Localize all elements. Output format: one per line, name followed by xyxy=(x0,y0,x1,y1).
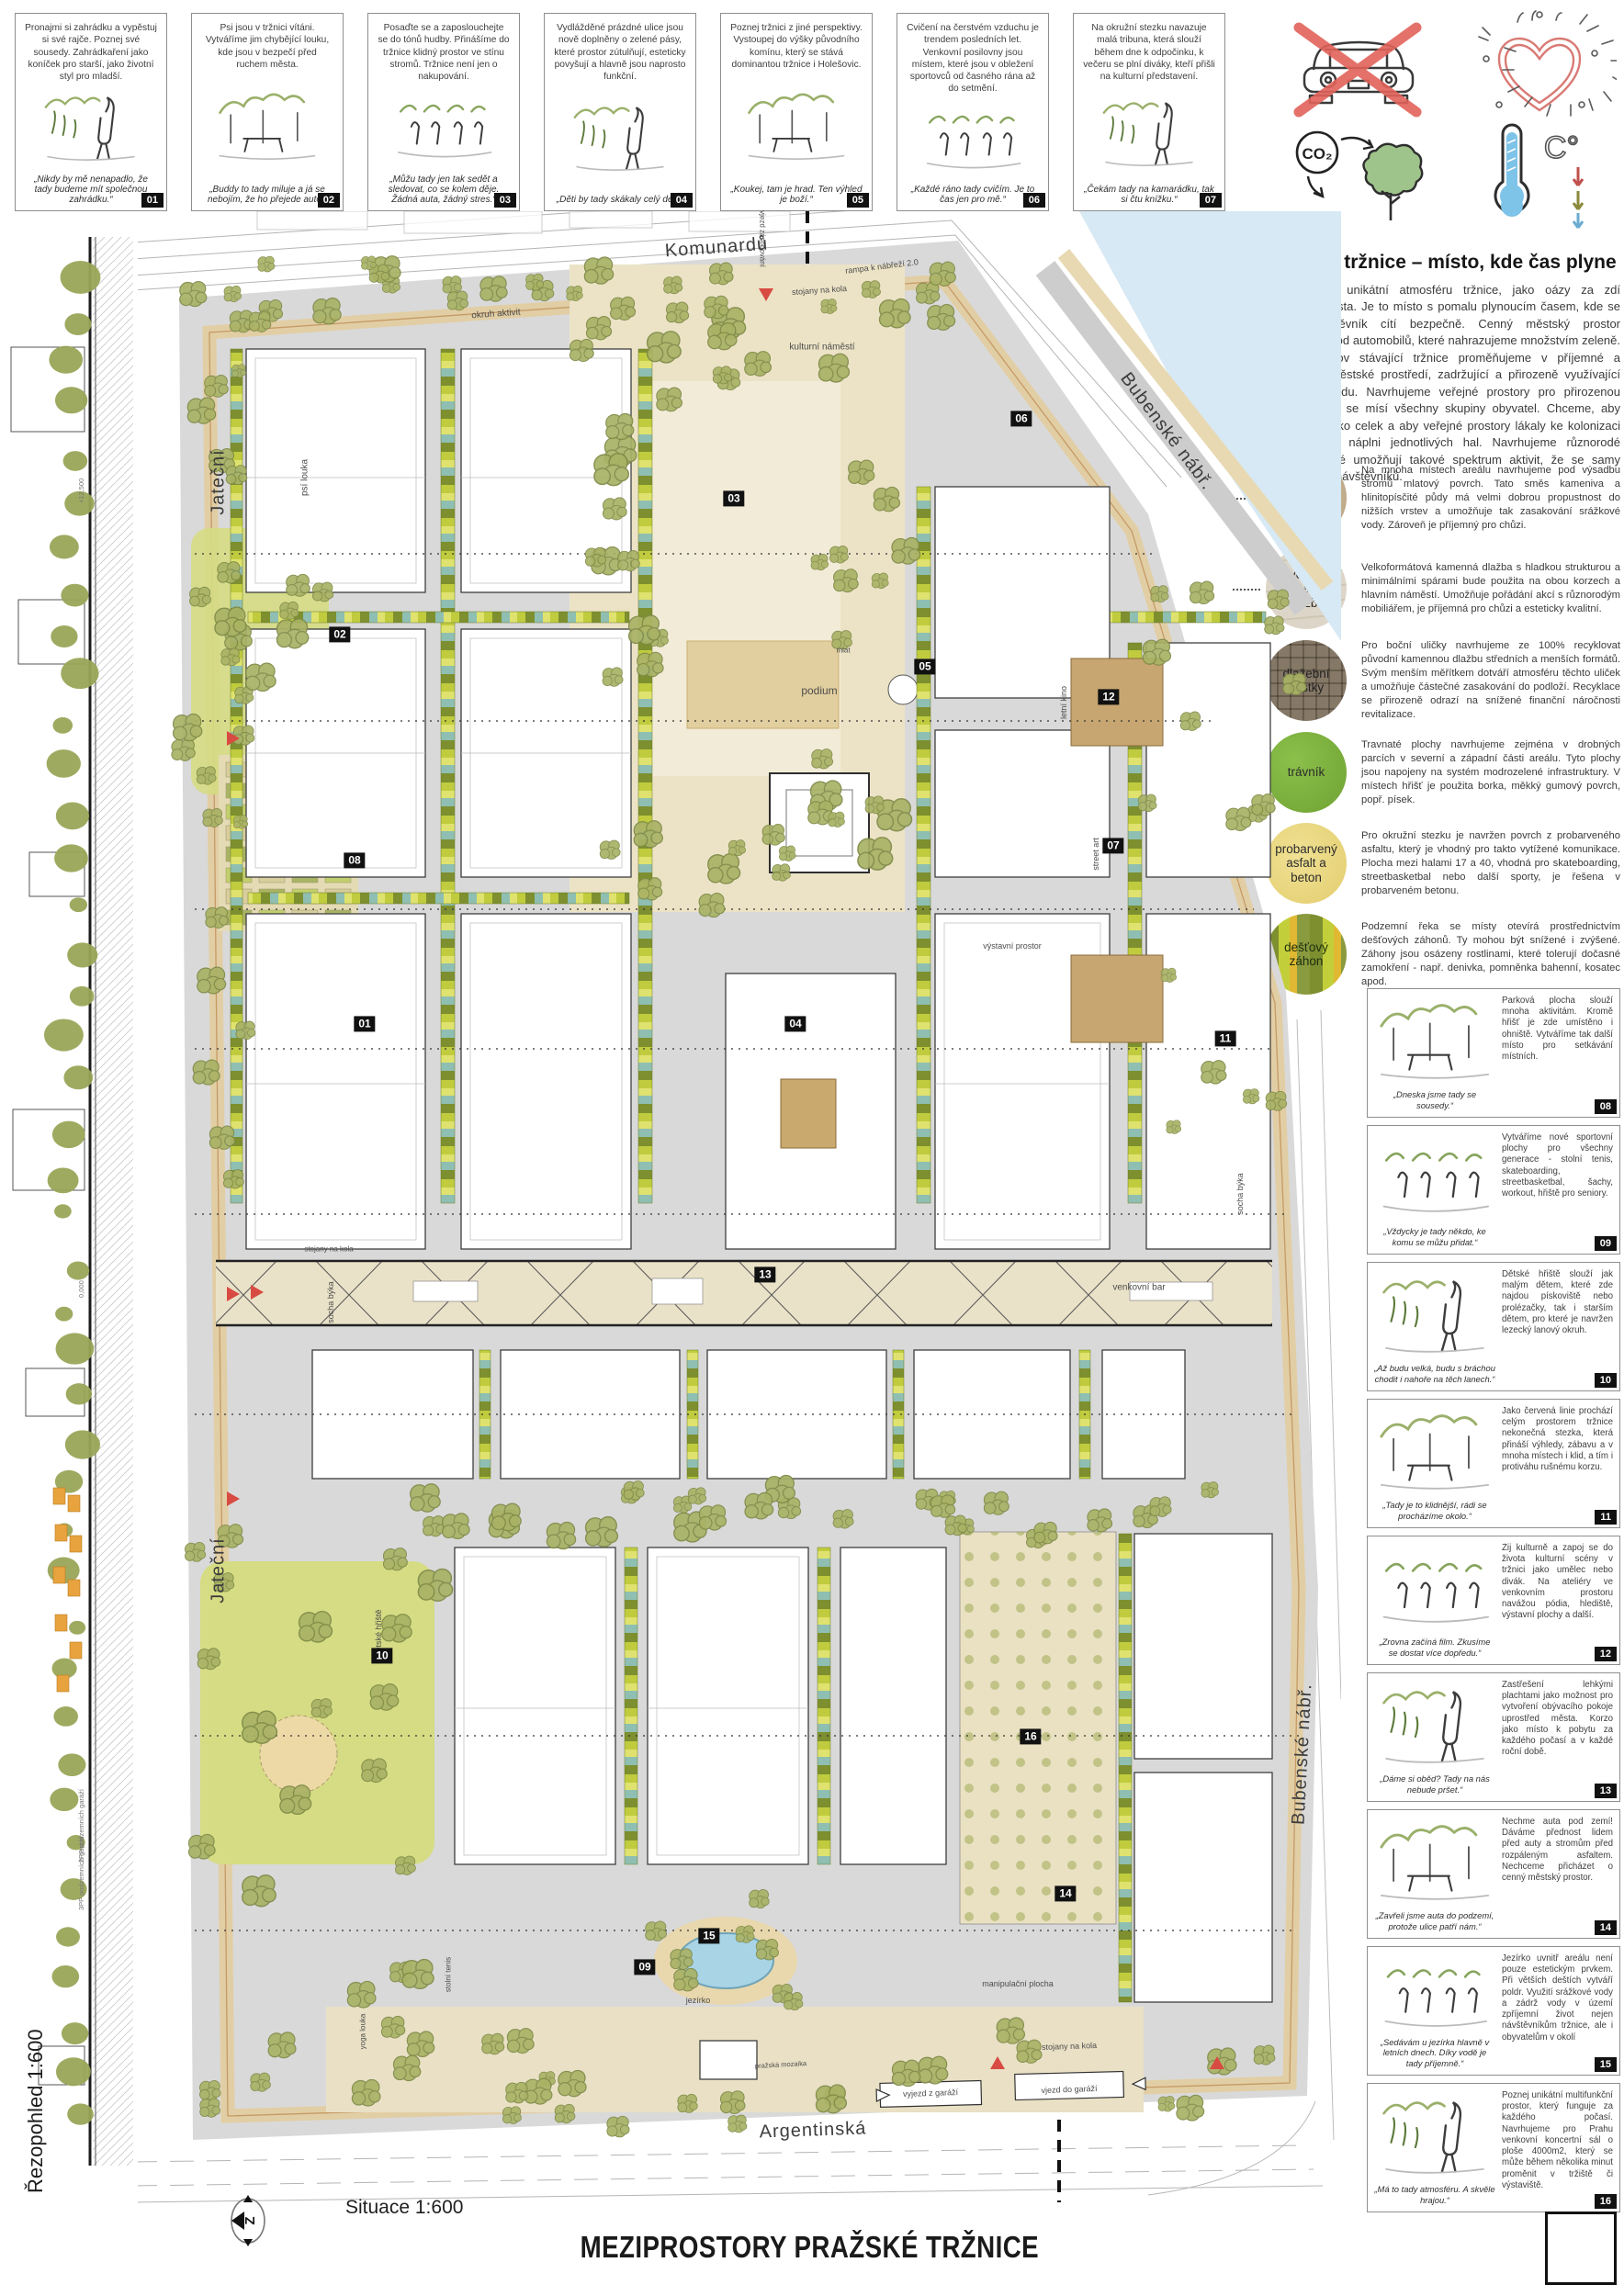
area-label: vjezd do garáží xyxy=(1041,2084,1097,2095)
vignette-number-badge: 06 xyxy=(1023,193,1045,208)
story-text: Dětské hřiště slouží jak malým dětem, kt… xyxy=(1502,1269,1613,1384)
entrance-triangle-marker xyxy=(759,288,773,301)
story-card: „Zrovna začíná film. Zkusíme se dostat v… xyxy=(1367,1536,1620,1665)
story-sketch xyxy=(1374,1132,1495,1224)
story-quote: „Sedávám u jezírka hlavně v letních dnec… xyxy=(1374,2037,1495,2068)
area-label: socha býka xyxy=(326,1281,335,1323)
plan-number-marker: 13 xyxy=(754,1266,775,1282)
plan-number-marker: 14 xyxy=(1054,1885,1076,1901)
story-number-badge: 13 xyxy=(1595,1784,1617,1798)
vignette-card: Cvičení na čerstvém vzduchu je trendem p… xyxy=(897,13,1049,211)
vignette-text: Pronajmi si zahrádku a vypěstuj si své r… xyxy=(25,22,157,83)
site-plan-overlay: KomunardůArgentinskáJatečníJatečníBubens… xyxy=(138,211,1341,2204)
vignette-text: Na okružní stezku navazuje malá tribuna,… xyxy=(1083,22,1215,83)
plan-number-marker: 11 xyxy=(1215,1030,1236,1046)
plan-number-marker: 06 xyxy=(1010,411,1032,426)
plan-number-marker: 04 xyxy=(784,1016,806,1031)
area-label: letní kino xyxy=(1059,686,1068,719)
vignette-card: Pronajmi si zahrádku a vypěstuj si své r… xyxy=(15,13,167,211)
plan-number-marker: 01 xyxy=(354,1016,375,1031)
story-sketch xyxy=(1374,1817,1495,1908)
plan-number-marker: 15 xyxy=(698,1928,719,1943)
area-label: socha býka xyxy=(1235,1173,1245,1215)
legend-text: Na mnoha místech areálu navrhujeme pod v… xyxy=(1361,464,1620,533)
story-sketch xyxy=(1374,1543,1495,1635)
vignette-text: Poznej tržnici z jiné perspektivy. Vysto… xyxy=(730,22,863,71)
story-card: „Až budu velká, budu s bráchou chodit i … xyxy=(1367,1262,1620,1391)
empty-stamp-box xyxy=(1545,2212,1617,2285)
elevation-trees xyxy=(44,261,100,2125)
vignette-quote: „Čekám tady na kamarádku, tak si čtu kní… xyxy=(1083,185,1215,205)
vignette-card: Posaďte se a zaposlouchejte se do tónů h… xyxy=(367,13,520,211)
vignette-number-badge: 02 xyxy=(318,193,340,208)
story-text: Poznej unikátní multifunkční prostor, kt… xyxy=(1502,2090,1613,2205)
entrance-triangle-marker xyxy=(227,1287,240,1301)
vignette-text: Psi jsou v tržnici vítáni. Vytváříme jim… xyxy=(201,22,333,71)
story-quote: „Dáme si oběd? Tady na nás nebude pršet.… xyxy=(1374,1773,1495,1795)
plan-number-marker: 08 xyxy=(344,852,365,868)
story-card-column: „Dneska jsme tady se sousedy.“ Parková p… xyxy=(1367,988,1620,2212)
story-card: „Dneska jsme tady se sousedy.“ Parková p… xyxy=(1367,988,1620,1118)
story-number-badge: 15 xyxy=(1595,2057,1617,2072)
vignette-quote: „Buddy to tady miluje a já se nebojím, ž… xyxy=(201,185,333,205)
story-sketch xyxy=(1374,2090,1495,2182)
story-card: „Má to tady atmosféru. A skvěle hrajou.“… xyxy=(1367,2083,1620,2212)
area-label: pražská mozaika xyxy=(755,2059,807,2070)
story-quote: „Má to tady atmosféru. A skvěle hrajou.“ xyxy=(1374,2184,1495,2205)
vignette-number-badge: 05 xyxy=(847,193,869,208)
ground-hatch xyxy=(93,237,133,2166)
vignette-quote: „Každé ráno tady cvičím. Je to čas jen p… xyxy=(907,185,1039,205)
entrance-triangle-marker xyxy=(227,731,240,746)
vignette-sketch xyxy=(25,83,157,173)
legend-text: Travnaté plochy navrhujeme zejména v dro… xyxy=(1361,738,1620,807)
area-label: stojany na kola xyxy=(792,284,848,297)
vignette-number-badge: 03 xyxy=(494,193,516,208)
north-arrow: Z xyxy=(219,2191,274,2250)
story-card: „Sedávám u jezírka hlavně v letních dnec… xyxy=(1367,1946,1620,2076)
plan-number-marker: 02 xyxy=(329,626,350,642)
story-number-badge: 11 xyxy=(1595,1510,1617,1525)
story-sketch xyxy=(1374,1680,1495,1772)
story-text: Parková plocha slouží mnoha aktivitám. K… xyxy=(1502,996,1613,1110)
elevation-mark: 3PP podzemních garáží xyxy=(77,1837,85,1910)
vignette-quote: „Koukej, tam je hrad. Ten výhled je boží… xyxy=(730,185,863,205)
story-quote: „Dneska jsme tady se sousedy.“ xyxy=(1374,1089,1495,1110)
story-card: „Dáme si oběd? Tady na nás nebude pršet.… xyxy=(1367,1672,1620,1802)
story-number-badge: 12 xyxy=(1595,1647,1617,1661)
elevation-mark: 0,000 xyxy=(77,1280,85,1298)
street-label: Jateční xyxy=(209,449,230,514)
no-cars-icon xyxy=(1277,17,1442,123)
plan-number-marker: 16 xyxy=(1020,1728,1041,1744)
vignette-card: Vydlážděné prázdné ulice jsou nově dopln… xyxy=(544,13,696,211)
area-label: jezírko xyxy=(686,1996,711,2005)
vignette-text: Posaďte se a zaposlouchejte se do tónů h… xyxy=(378,22,510,83)
area-label: stojany na kola xyxy=(304,1245,353,1254)
story-text: Zastřešení lehkými plachtami jako možnos… xyxy=(1502,1680,1613,1795)
plan-number-marker: 03 xyxy=(723,490,744,506)
story-card: „Tady je to klidnější, rádi se procházím… xyxy=(1367,1399,1620,1528)
plan-number-marker: 07 xyxy=(1102,838,1123,853)
plan-number-marker: 05 xyxy=(914,658,935,674)
story-quote: „Zrovna začíná film. Zkusíme se dostat v… xyxy=(1374,1637,1495,1658)
vignette-quote: „Děti by tady skákaly celý den.“ xyxy=(554,195,686,205)
vignette-card: Na okružní stezku navazuje malá tribuna,… xyxy=(1073,13,1225,211)
entrance-triangle-marker xyxy=(251,1285,264,1300)
story-text: Vytváříme nové sportovní plochy pro všec… xyxy=(1502,1132,1613,1247)
area-label: okruh aktivit xyxy=(471,308,521,321)
area-label: rampa k nábřeží 2.0 xyxy=(845,257,919,276)
story-number-badge: 10 xyxy=(1595,1373,1617,1388)
area-label: stolní tenis xyxy=(445,1957,453,1992)
vignette-number-badge: 07 xyxy=(1200,193,1222,208)
story-quote: „Zavřeli jsme auta do podzemí, protože u… xyxy=(1374,1910,1495,1931)
vignette-sketch xyxy=(378,83,510,173)
area-label: street art xyxy=(1091,838,1100,871)
co2-label: CO₂ xyxy=(1302,145,1332,163)
vignette-row: Pronajmi si zahrádku a vypěstuj si své r… xyxy=(15,13,1225,211)
story-sketch xyxy=(1374,996,1495,1087)
story-number-badge: 16 xyxy=(1595,2194,1617,2209)
north-letter: Z xyxy=(242,2216,258,2224)
street-label: Bubenské nábř. xyxy=(1288,1683,1316,1825)
vignette-sketch xyxy=(907,96,1039,184)
plan-number-marker: 09 xyxy=(634,1959,655,1975)
vignette-sketch xyxy=(1083,83,1215,183)
area-label: kulturní náměstí xyxy=(789,343,854,353)
vignette-text: Vydlážděné prázdné ulice jsou nově dopln… xyxy=(554,22,686,83)
situace-scale-label: Situace 1:600 xyxy=(345,2197,463,2219)
story-quote: „Tady je to klidnější, rádi se procházím… xyxy=(1374,1500,1495,1521)
street-label: Argentinská xyxy=(759,2118,866,2143)
story-number-badge: 14 xyxy=(1595,1920,1617,1935)
story-text: Nechme auta pod zemí! Dáváme přednost li… xyxy=(1502,1817,1613,1931)
story-number-badge: 08 xyxy=(1595,1099,1617,1114)
story-card: „Vždycky je tady někdo, ke komu se můžu … xyxy=(1367,1125,1620,1255)
story-sketch xyxy=(1374,1406,1495,1498)
story-text: Žij kulturně a zapoj se do života kultur… xyxy=(1502,1543,1613,1658)
vignette-sketch xyxy=(554,83,686,193)
street-label: Komunardů xyxy=(664,234,769,263)
vignette-card: Psi jsou v tržnici vítáni. Vytváříme jim… xyxy=(191,13,344,211)
entrance-triangle-marker xyxy=(1210,2056,1224,2069)
story-sketch xyxy=(1374,1269,1495,1361)
vignette-text: Cvičení na čerstvém vzduchu je trendem p… xyxy=(907,22,1039,96)
story-card: „Zavřeli jsme auta do podzemí, protože u… xyxy=(1367,1809,1620,1939)
legend-text: Podzemní řeka se místy otevírá prostředn… xyxy=(1361,920,1620,989)
cooling-icon: C° xyxy=(1470,121,1609,230)
area-label: yoga louka xyxy=(359,2014,367,2050)
plan-number-marker: 10 xyxy=(371,1648,392,1663)
community-heart-icon xyxy=(1462,7,1617,127)
elevation-label: Řezopohled 1:600 xyxy=(24,2029,48,2193)
legend-text: Pro okružní stezku je navržen povrch z p… xyxy=(1361,829,1620,898)
area-label: stojany na kola xyxy=(1042,2041,1097,2052)
street-label: Bubenské nábř. xyxy=(1115,369,1217,495)
story-text: Jako červená linie prochází celým prosto… xyxy=(1502,1406,1613,1521)
vignette-card: Poznej tržnici z jiné perspektivy. Vysto… xyxy=(720,13,873,211)
elevation-buildings xyxy=(11,347,85,2085)
story-sketch xyxy=(1374,1953,1495,2035)
legend-text: Velkoformátová kamenná dlažba s hladkou … xyxy=(1361,561,1620,616)
vignette-sketch xyxy=(730,71,863,183)
area-label: venkovní bar xyxy=(1112,1283,1165,1293)
area-label: vyjezd z garáží xyxy=(903,2088,958,2099)
legend-text: Pro boční uličky navrhujeme ze 100% recy… xyxy=(1361,639,1620,722)
area-label: vjezd zásobování xyxy=(759,210,767,267)
plan-number-marker: 12 xyxy=(1098,689,1119,704)
area-label: mlat xyxy=(836,647,850,655)
story-number-badge: 09 xyxy=(1595,1236,1617,1251)
area-label: výstavní prostor xyxy=(983,941,1042,951)
vignette-quote: „Můžu tady jen tak sedět a sledovat, co … xyxy=(378,174,510,205)
vignette-sketch xyxy=(201,71,333,183)
vignette-number-badge: 04 xyxy=(671,193,693,208)
entrance-triangle-marker xyxy=(990,2056,1005,2069)
area-label: psí louka xyxy=(300,459,310,496)
elevation-mark: +12,500 xyxy=(77,478,85,503)
area-label: manipulační plocha xyxy=(982,1979,1054,1988)
vignette-quote: „Nikdy by mě nenapadlo, že tady budeme m… xyxy=(25,174,157,205)
street-label: Jateční xyxy=(209,1537,230,1603)
vignette-number-badge: 01 xyxy=(141,193,164,208)
story-text: Jezírko uvnitř areálu není pouze estetic… xyxy=(1502,1953,1613,2068)
elevation-section-drawing: Řezopohled 1:600 +12,5000,0002PP podzemn… xyxy=(0,209,138,2204)
poster-title: MEZIPROSTORY PRAŽSKÉ TRŽNICE xyxy=(581,2230,982,2265)
entrance-triangle-marker xyxy=(227,1491,240,1506)
story-quote: „Až budu velká, budu s bráchou chodit i … xyxy=(1374,1363,1495,1384)
celsius-label: C° xyxy=(1544,130,1579,165)
area-label: podium xyxy=(801,684,837,697)
story-quote: „Vždycky je tady někdo, ke komu se můžu … xyxy=(1374,1226,1495,1247)
site-plan: KomunardůArgentinskáJatečníJatečníBubens… xyxy=(138,211,1341,2204)
